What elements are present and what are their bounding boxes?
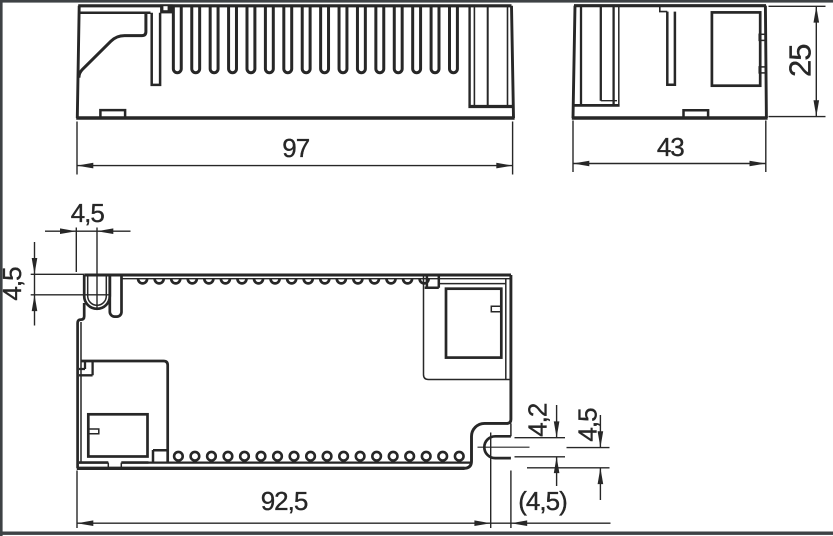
svg-text:25: 25 — [783, 44, 818, 76]
svg-text:(4,5): (4,5) — [518, 486, 567, 516]
svg-text:43: 43 — [657, 132, 684, 162]
svg-text:97: 97 — [282, 133, 309, 163]
svg-text:4,5: 4,5 — [572, 408, 602, 442]
svg-text:4,5: 4,5 — [0, 267, 27, 301]
svg-text:4,2: 4,2 — [523, 403, 553, 437]
svg-text:92,5: 92,5 — [261, 486, 308, 516]
svg-text:4,5: 4,5 — [71, 198, 105, 228]
